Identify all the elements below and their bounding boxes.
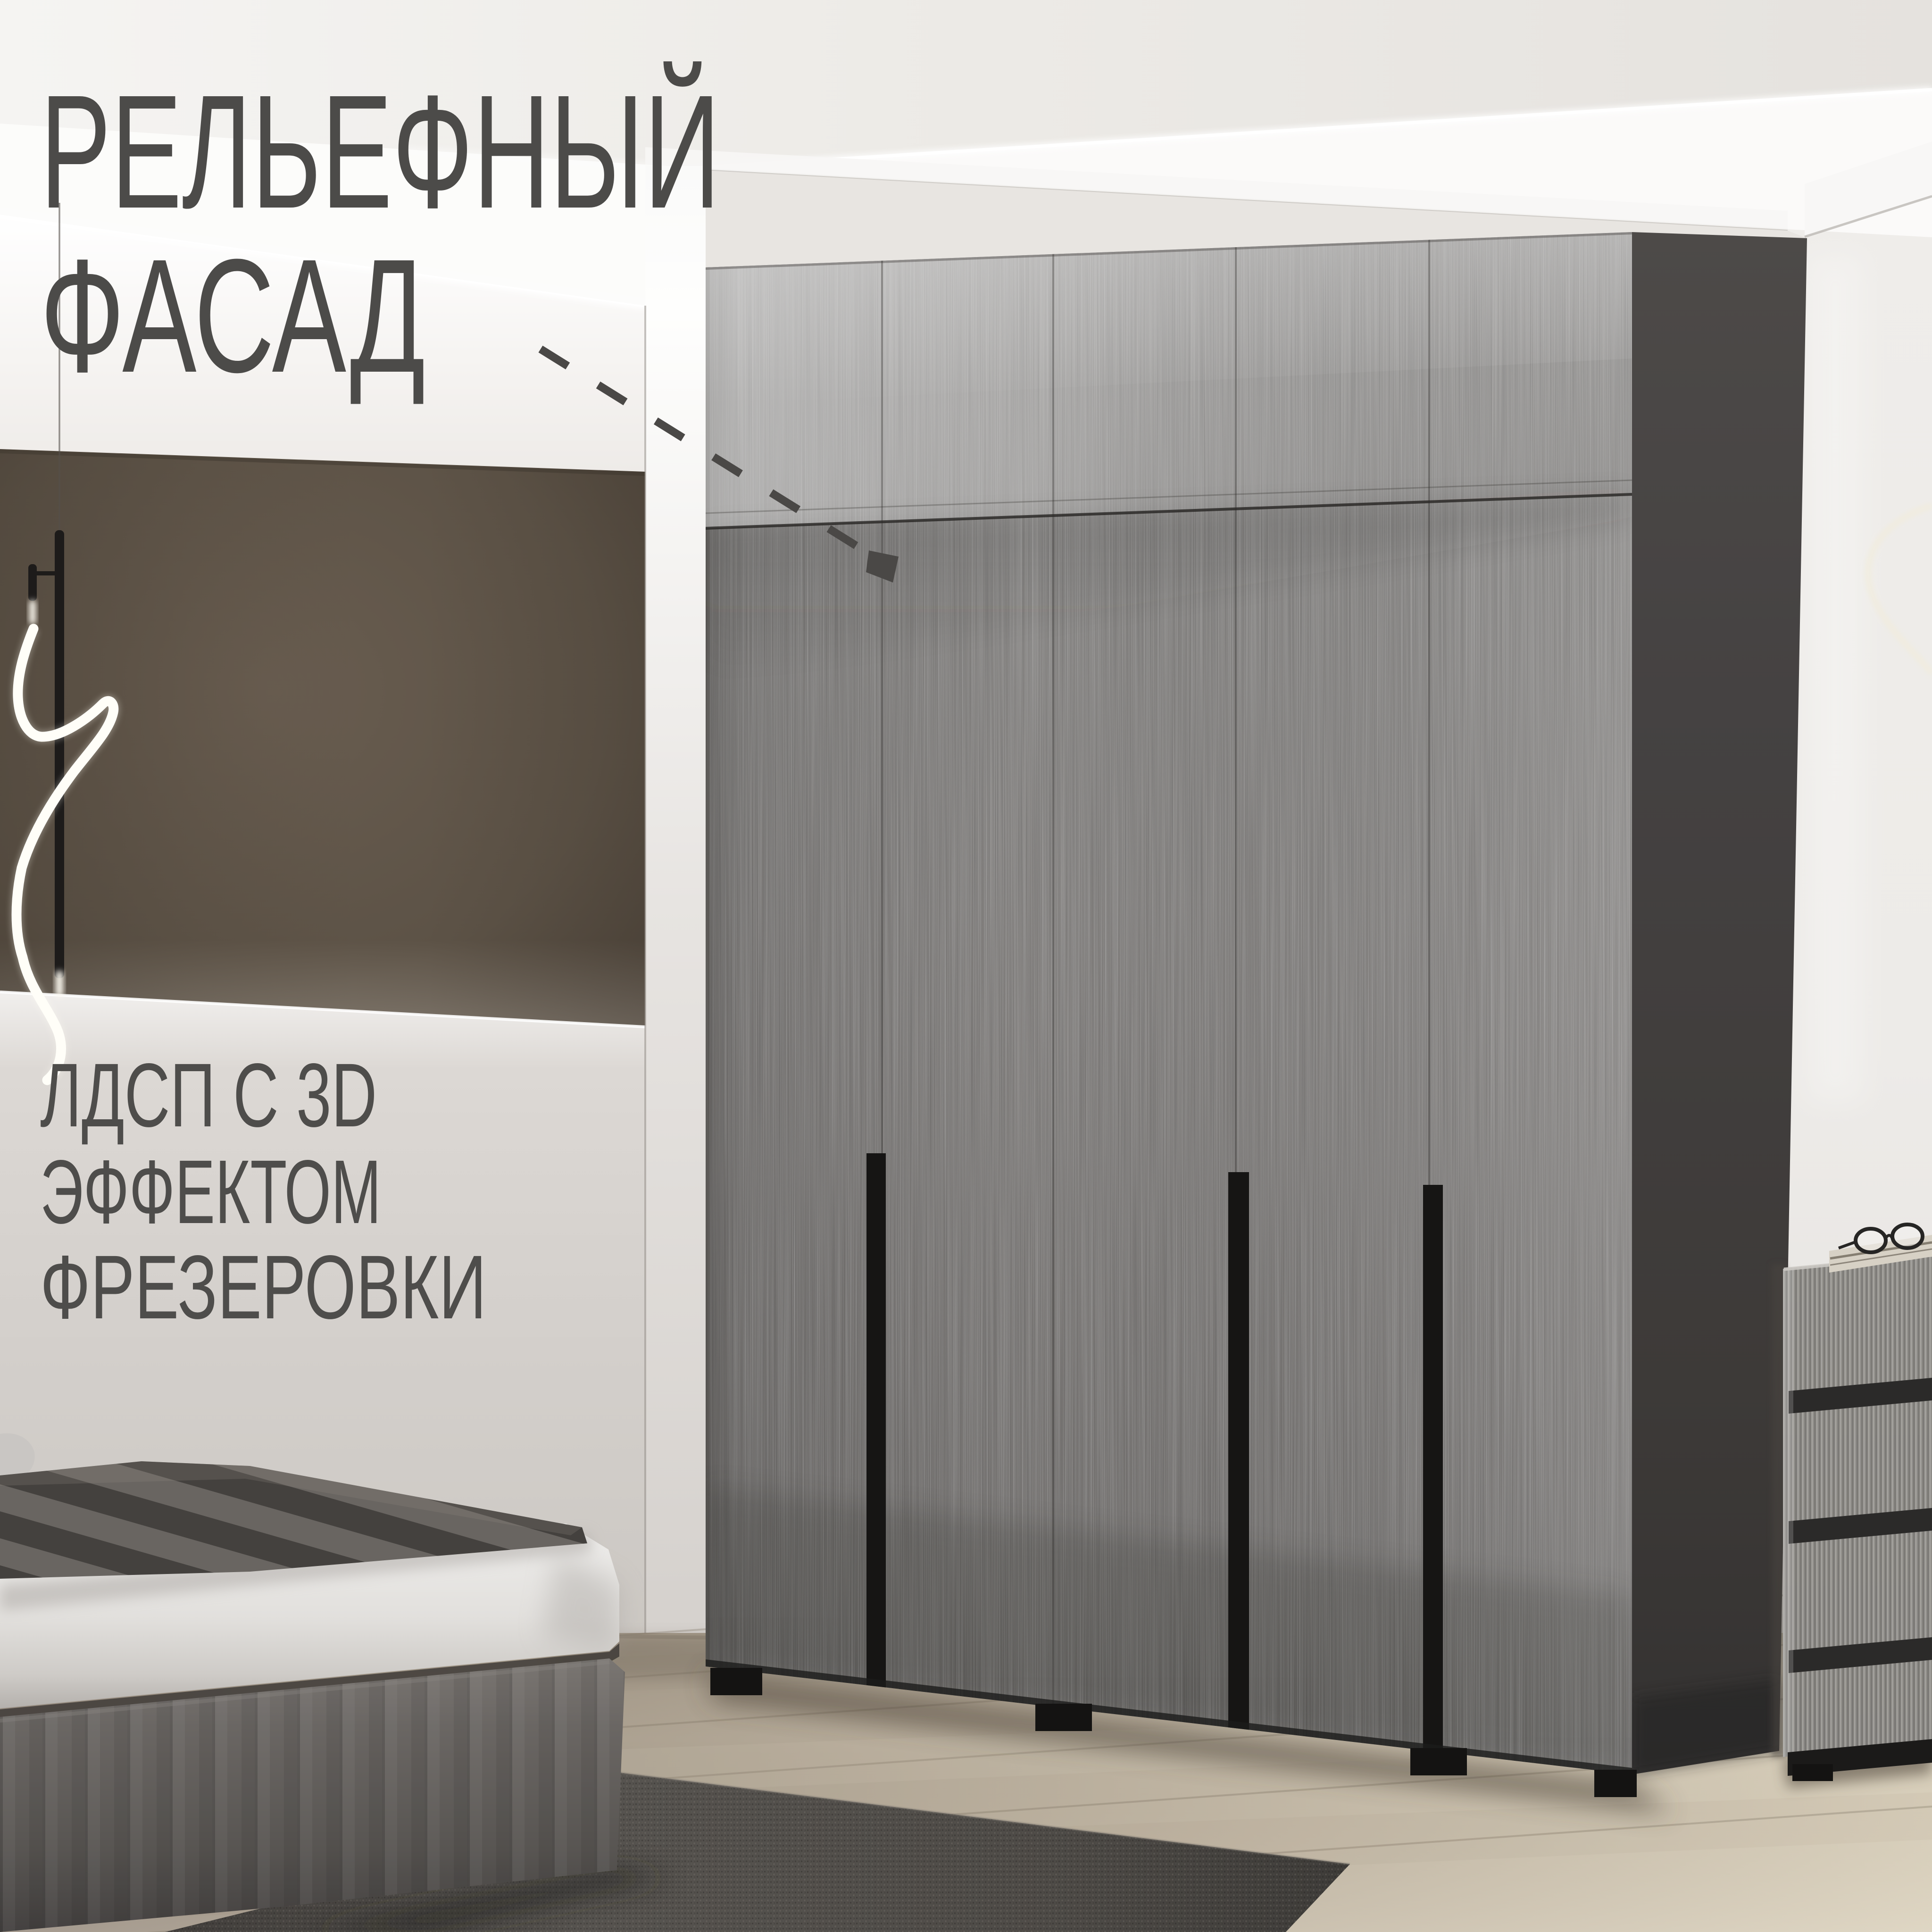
- svg-text:ЭФФЕКТОМ: ЭФФЕКТОМ: [40, 1141, 381, 1243]
- svg-text:ФРЕЗЕРОВКИ: ФРЕЗЕРОВКИ: [40, 1237, 486, 1338]
- svg-text:РЕЛЬЕФНЫЙ: РЕЛЬЕФНЫЙ: [40, 61, 720, 242]
- svg-text:ЛДСП С 3D: ЛДСП С 3D: [40, 1045, 377, 1146]
- svg-text:ФАСАД: ФАСАД: [40, 225, 425, 406]
